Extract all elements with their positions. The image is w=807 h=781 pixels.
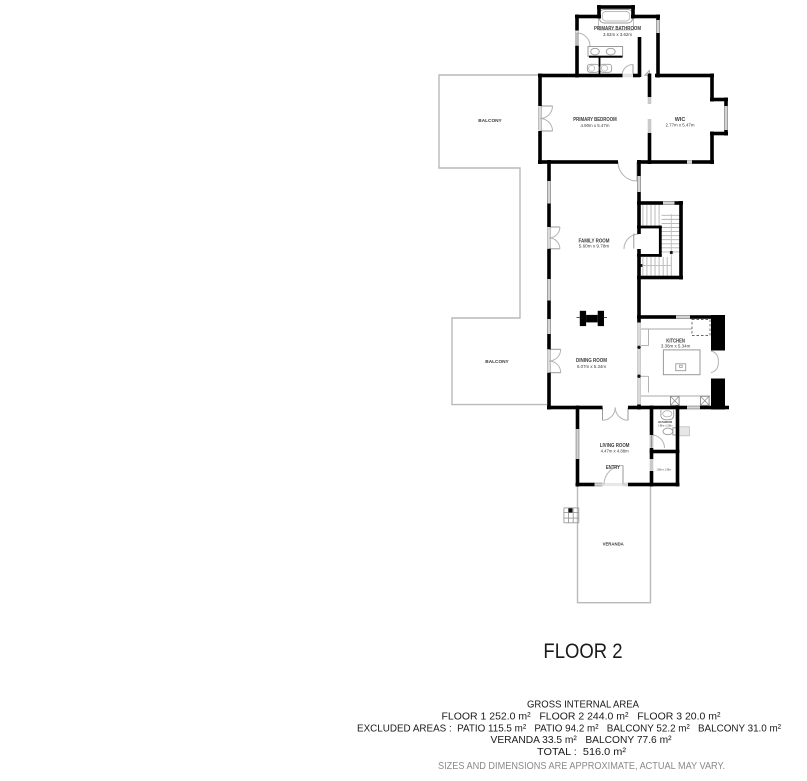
- svg-text:BALCONY: BALCONY: [478, 118, 502, 124]
- svg-text:1.88m x 1.98m: 1.88m x 1.98m: [656, 468, 671, 472]
- svg-text:3.62m x 3.62m: 3.62m x 3.62m: [603, 32, 632, 37]
- svg-text:VERANDA 33.5 m² BALCONY 77.6: VERANDA 33.5 m² BALCONY 77.6 m²: [491, 735, 673, 746]
- svg-text:DINING ROOM: DINING ROOM: [576, 358, 607, 364]
- svg-text:FLOOR 2: FLOOR 2: [543, 639, 622, 663]
- svg-text:EXCLUDED AREAS : PATIO 115.5: EXCLUDED AREAS : PATIO 115.5 m² PATIO 94…: [357, 724, 782, 735]
- svg-text:5.60m x 9.78m: 5.60m x 9.78m: [579, 243, 610, 248]
- svg-text:FLOOR 1 252.0 m² FLOOR 2 244: FLOOR 1 252.0 m² FLOOR 2 244.0 m² FLOOR …: [442, 711, 722, 722]
- svg-text:VERANDA: VERANDA: [603, 542, 625, 548]
- svg-text:SIZES AND DIMENSIONS ARE APPRO: SIZES AND DIMENSIONS ARE APPROXIMATE, AC…: [438, 761, 725, 772]
- svg-text:ENTRY: ENTRY: [606, 465, 621, 471]
- svg-text:BALCONY: BALCONY: [485, 359, 509, 365]
- svg-text:1.88m x 2.08m: 1.88m x 2.08m: [658, 423, 673, 427]
- svg-text:6.07m x 5.34m: 6.07m x 5.34m: [577, 364, 606, 369]
- svg-text:4.90m x 5.47m: 4.90m x 5.47m: [581, 123, 610, 128]
- svg-text:4.47m x 4.88m: 4.47m x 4.88m: [601, 448, 629, 453]
- svg-text:GROSS INTERNAL AREA: GROSS INTERNAL AREA: [527, 700, 639, 711]
- svg-text:TOTAL : 516.0 m²: TOTAL : 516.0 m²: [537, 747, 627, 758]
- svg-text:PRIMARY BEDROOM: PRIMARY BEDROOM: [573, 117, 616, 123]
- svg-text:2.77m x 5.47m: 2.77m x 5.47m: [666, 123, 695, 128]
- svg-text:3.36m x 5.34m: 3.36m x 5.34m: [661, 343, 691, 348]
- svg-text:PRIMARY BATHROOM: PRIMARY BATHROOM: [594, 26, 641, 32]
